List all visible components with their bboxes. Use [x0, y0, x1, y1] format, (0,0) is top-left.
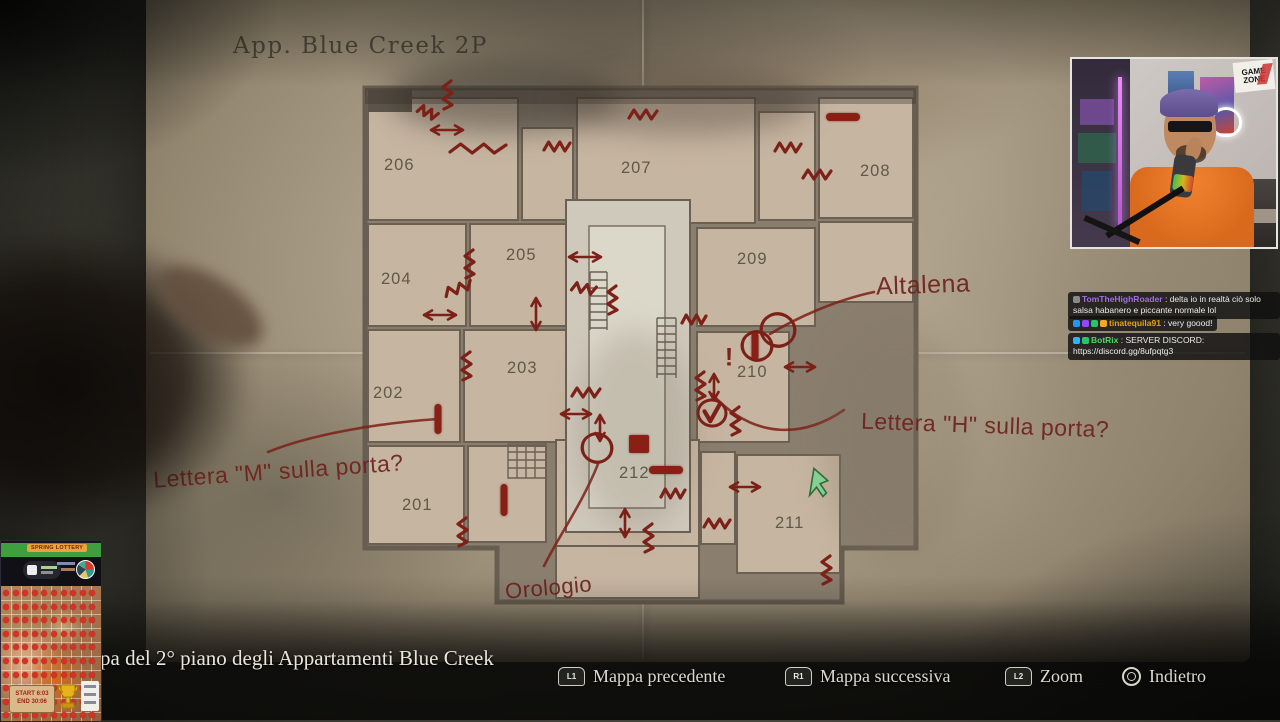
- chat-badge-icon: [1082, 320, 1089, 327]
- ink-zigzag-h: [802, 167, 832, 181]
- lottery-dot: [22, 712, 28, 718]
- lottery-dot: [80, 631, 86, 637]
- lottery-dot: [3, 712, 9, 718]
- ink-arrow-v: [529, 294, 543, 334]
- chat-username: BotRix: [1091, 335, 1118, 345]
- lottery-dot: [3, 604, 9, 610]
- lottery-dot: [89, 644, 95, 650]
- lottery-dot: [41, 590, 47, 596]
- ink-zigzag-v: [819, 555, 833, 585]
- room-number-204: 204: [381, 270, 412, 289]
- card-gridline: [1, 670, 101, 671]
- lottery-dot: [61, 712, 67, 718]
- lottery-dot: [70, 590, 76, 596]
- lottery-dot: [32, 590, 38, 596]
- lottery-dot: [22, 672, 28, 678]
- lottery-dot: [41, 658, 47, 664]
- l1-button-icon: L1: [558, 667, 585, 686]
- card-gridline: [1, 614, 101, 615]
- pill-text-line: [41, 571, 53, 574]
- lottery-dot: [70, 712, 76, 718]
- player-position-arrow: [806, 467, 832, 499]
- glasses: [1168, 121, 1212, 132]
- ink-door-bar-h: [649, 466, 683, 474]
- ink-zigzag-h: [442, 276, 475, 299]
- card-header-strip: SPRING LOTTERY: [1, 543, 101, 557]
- timer-button: START 6:03END 30:06: [9, 685, 55, 713]
- game-zone-sign: GAMEZONE: [1233, 59, 1276, 93]
- lottery-dot: [41, 617, 47, 623]
- lottery-dot: [22, 617, 28, 623]
- chat-badge-icon: [1100, 320, 1107, 327]
- lottery-dot: [61, 590, 67, 596]
- lottery-dot: [13, 617, 19, 623]
- room-number-201: 201: [402, 496, 433, 515]
- lottery-dot: [89, 617, 95, 623]
- lottery-dot: [61, 658, 67, 664]
- subheader-text-line: [57, 562, 75, 565]
- pie-chart: [76, 560, 95, 579]
- lottery-dot: [61, 631, 67, 637]
- ink-circle: [579, 430, 615, 466]
- ink-checkmark-circle: [695, 396, 729, 430]
- room-number-208: 208: [860, 162, 891, 181]
- ink-zigzag-h: [449, 141, 507, 155]
- webcam-overlay: GAMEZONE: [1070, 57, 1278, 249]
- lottery-dot: [51, 617, 57, 623]
- room-number-205: 205: [506, 246, 537, 265]
- lottery-dot: [70, 672, 76, 678]
- l2-button-icon: L2: [1005, 667, 1032, 686]
- lottery-dot: [51, 590, 57, 596]
- ink-zigzag-h: [571, 385, 601, 399]
- ink-zigzag-v: [605, 285, 619, 315]
- ink-zigzag-h: [660, 486, 686, 500]
- lottery-dot: [13, 672, 19, 678]
- lottery-dot: [22, 604, 28, 610]
- score-line: [84, 693, 96, 696]
- card-gridline: [1, 600, 101, 601]
- ink-arrow-h: [557, 407, 595, 421]
- hud-button-mappa-successiva[interactable]: R1Mappa successiva: [785, 666, 950, 687]
- lottery-dot: [89, 631, 95, 637]
- ink-door-bar-v: [501, 484, 508, 516]
- ink-arrow-h: [781, 360, 819, 374]
- ink-zigzag-h: [570, 279, 598, 297]
- lottery-dot: [51, 658, 57, 664]
- lottery-dot: [32, 644, 38, 650]
- lottery-dot: [89, 590, 95, 596]
- ink-arrow-h: [565, 250, 605, 264]
- score-line: [84, 701, 96, 704]
- chat-badge-icon: [1091, 320, 1098, 327]
- lottery-dot: [80, 604, 86, 610]
- ink-zigzag-v: [462, 249, 476, 279]
- subheader-text-line: [61, 568, 75, 571]
- lottery-dot: [70, 604, 76, 610]
- ink-zigzag-v: [641, 523, 655, 553]
- ink-exclamation: !: [725, 344, 733, 373]
- pill-text-line: [41, 566, 57, 569]
- lottery-dot: [51, 672, 57, 678]
- lottery-dot: [61, 604, 67, 610]
- score-line: [84, 685, 96, 688]
- handwritten-note: Altalena: [876, 269, 971, 301]
- chat-message: BotRix : SERVER DISCORD: https://discord…: [1068, 333, 1280, 360]
- card-gridline: [1, 628, 101, 629]
- lottery-dot: [61, 644, 67, 650]
- chat-badge-icon: [1082, 337, 1089, 344]
- card-gridline: [1, 642, 101, 643]
- ink-zigzag-v: [440, 80, 454, 110]
- lottery-dot: [22, 590, 28, 596]
- hud-button-label: Zoom: [1040, 666, 1083, 687]
- chat-text: : very goood!: [1161, 318, 1213, 328]
- ink-door-bar-v: [435, 404, 442, 434]
- room-number-202: 202: [373, 384, 404, 403]
- lottery-dot: [32, 658, 38, 664]
- r1-button-icon: R1: [785, 667, 812, 686]
- lottery-dot: [3, 617, 9, 623]
- ink-rect: [629, 435, 649, 453]
- lottery-dot: [80, 644, 86, 650]
- lottery-dot: [41, 672, 47, 678]
- lottery-dot: [51, 644, 57, 650]
- ink-arrow-h: [427, 123, 467, 137]
- room-number-211: 211: [775, 514, 804, 533]
- led-strip: [1118, 77, 1122, 227]
- ink-door-bar-h: [826, 113, 860, 121]
- chat-badge-icon: [1073, 296, 1080, 303]
- room-number-212: 212: [619, 464, 650, 483]
- card-header-badge: SPRING LOTTERY: [27, 544, 87, 552]
- lottery-dot: [41, 604, 47, 610]
- lottery-dot: [13, 604, 19, 610]
- lottery-dot: [89, 712, 95, 718]
- lottery-dot: [22, 658, 28, 664]
- lottery-dot: [13, 644, 19, 650]
- shelf-items: [1082, 171, 1112, 211]
- lottery-card-overlay: SPRING LOTTERY START 6:03END 30:06: [0, 540, 102, 722]
- chat-username: tinatequila91: [1109, 318, 1161, 328]
- hud-button-label: Mappa successiva: [820, 666, 950, 687]
- lottery-dot: [32, 604, 38, 610]
- hud-button-mappa-precedente[interactable]: L1Mappa precedente: [558, 666, 725, 687]
- purple-cap: [1160, 89, 1218, 117]
- camera-pill: [23, 561, 61, 579]
- lottery-dot: [89, 658, 95, 664]
- room-number-210: 210: [737, 363, 768, 382]
- lottery-dot: [41, 631, 47, 637]
- lottery-dot: [32, 617, 38, 623]
- lottery-dot: [89, 672, 95, 678]
- chat-badge-icon: [1073, 337, 1080, 344]
- room-number-203: 203: [507, 359, 538, 378]
- lottery-dot: [89, 604, 95, 610]
- lottery-dot: [41, 644, 47, 650]
- lottery-dot: [3, 672, 9, 678]
- lottery-dot: [80, 658, 86, 664]
- hud-button-indietro[interactable]: Indietro: [1122, 666, 1206, 687]
- lottery-dot: [41, 712, 47, 718]
- lottery-dot: [3, 658, 9, 664]
- ink-arrow-h: [420, 308, 460, 322]
- room-number-209: 209: [737, 250, 768, 269]
- lottery-dot: [70, 658, 76, 664]
- lottery-dot: [51, 604, 57, 610]
- lottery-dot: [80, 712, 86, 718]
- hud-button-label: Indietro: [1149, 666, 1206, 687]
- lottery-dot: [3, 631, 9, 637]
- lottery-dot: [51, 631, 57, 637]
- shelf-items: [1078, 133, 1116, 163]
- ink-zigzag-h: [681, 312, 707, 326]
- ink-zigzag-h: [774, 140, 802, 154]
- lottery-dot: [80, 590, 86, 596]
- lottery-dot: [13, 631, 19, 637]
- lottery-dot: [70, 631, 76, 637]
- lottery-dot: [61, 672, 67, 678]
- ink-zigzag-v: [459, 351, 473, 381]
- ink-zigzag-h: [628, 107, 658, 121]
- lottery-dot: [22, 644, 28, 650]
- ink-zigzag-h: [415, 101, 441, 123]
- lottery-dot: [13, 658, 19, 664]
- lottery-dot: [3, 644, 9, 650]
- lottery-dot: [32, 672, 38, 678]
- circle-button-icon: [1122, 667, 1141, 686]
- lottery-dot: [70, 644, 76, 650]
- lottery-dot: [70, 617, 76, 623]
- lottery-dot: [22, 631, 28, 637]
- lottery-dot: [80, 617, 86, 623]
- lottery-dot: [13, 590, 19, 596]
- lottery-dot: [3, 590, 9, 596]
- trophy-icon: [57, 683, 79, 711]
- card-subheader: [1, 557, 101, 586]
- room-number-207: 207: [621, 159, 652, 178]
- chat-badge-icon: [1073, 320, 1080, 327]
- room-number-206: 206: [384, 156, 415, 175]
- lottery-dot: [32, 631, 38, 637]
- chat-message: tinatequila91 : very goood!: [1068, 316, 1217, 331]
- lottery-dot: [32, 712, 38, 718]
- lottery-dot: [61, 617, 67, 623]
- chat-message: TomTheHighRoader : delta io in realtà ci…: [1068, 292, 1280, 319]
- ink-door-bar-v: [752, 332, 759, 360]
- lottery-dot: [13, 712, 19, 718]
- map-name-label: pa del 2° piano degli Appartamenti Blue …: [100, 646, 494, 671]
- ink-arrow-h: [726, 480, 764, 494]
- chat-username: TomTheHighRoader: [1082, 294, 1163, 304]
- ink-arrow-v: [618, 505, 632, 541]
- hud-button-zoom[interactable]: L2Zoom: [1005, 666, 1083, 687]
- lottery-dot: [51, 712, 57, 718]
- ink-zigzag-v: [728, 406, 742, 436]
- hud-button-label: Mappa precedente: [593, 666, 725, 687]
- card-gridline: [1, 656, 101, 657]
- handwritten-note: Lettera "H" sulla porta?: [861, 408, 1110, 444]
- shelf-items: [1080, 99, 1114, 125]
- ink-zigzag-v: [455, 517, 469, 547]
- ink-zigzag-h: [543, 139, 571, 153]
- lottery-dot: [80, 672, 86, 678]
- score-box: [81, 681, 99, 711]
- ink-zigzag-h: [703, 516, 731, 530]
- camera-icon: [27, 565, 37, 575]
